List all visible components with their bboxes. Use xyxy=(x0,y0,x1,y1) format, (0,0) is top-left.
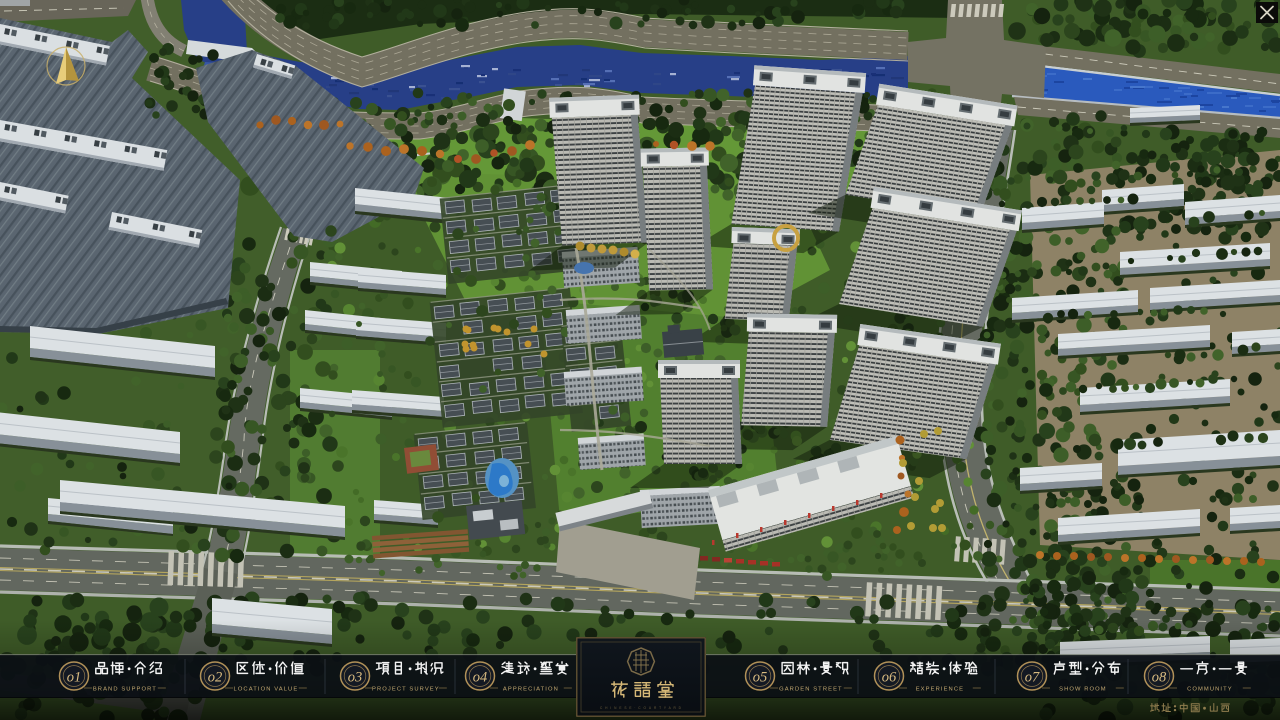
svg-text:APPRECIATION: APPRECIATION xyxy=(503,687,559,693)
svg-text:C H I N E S E · C O U R T Y A: C H I N E S E · C O U R T Y A R D xyxy=(600,706,682,710)
svg-text:o3: o3 xyxy=(348,670,363,686)
svg-text:GARDEN STREET: GARDEN STREET xyxy=(779,687,843,693)
svg-text:o4: o4 xyxy=(473,670,488,686)
svg-text:LOCATION VALUE: LOCATION VALUE xyxy=(234,687,299,693)
svg-text:o7: o7 xyxy=(1025,670,1040,686)
svg-text:o8: o8 xyxy=(1152,670,1167,686)
svg-text:PROJECT SURVEY: PROJECT SURVEY xyxy=(372,687,440,693)
svg-text:EXPERIENCE: EXPERIENCE xyxy=(916,687,964,693)
svg-text:o5: o5 xyxy=(753,670,768,686)
svg-text:o1: o1 xyxy=(67,670,82,686)
svg-text:o6: o6 xyxy=(882,670,897,686)
svg-text:SHOW ROOM: SHOW ROOM xyxy=(1059,687,1107,693)
svg-text:BRAND SUPPORT: BRAND SUPPORT xyxy=(93,687,157,693)
svg-text:o2: o2 xyxy=(208,670,223,686)
svg-text:COMMUNITY: COMMUNITY xyxy=(1187,687,1233,693)
